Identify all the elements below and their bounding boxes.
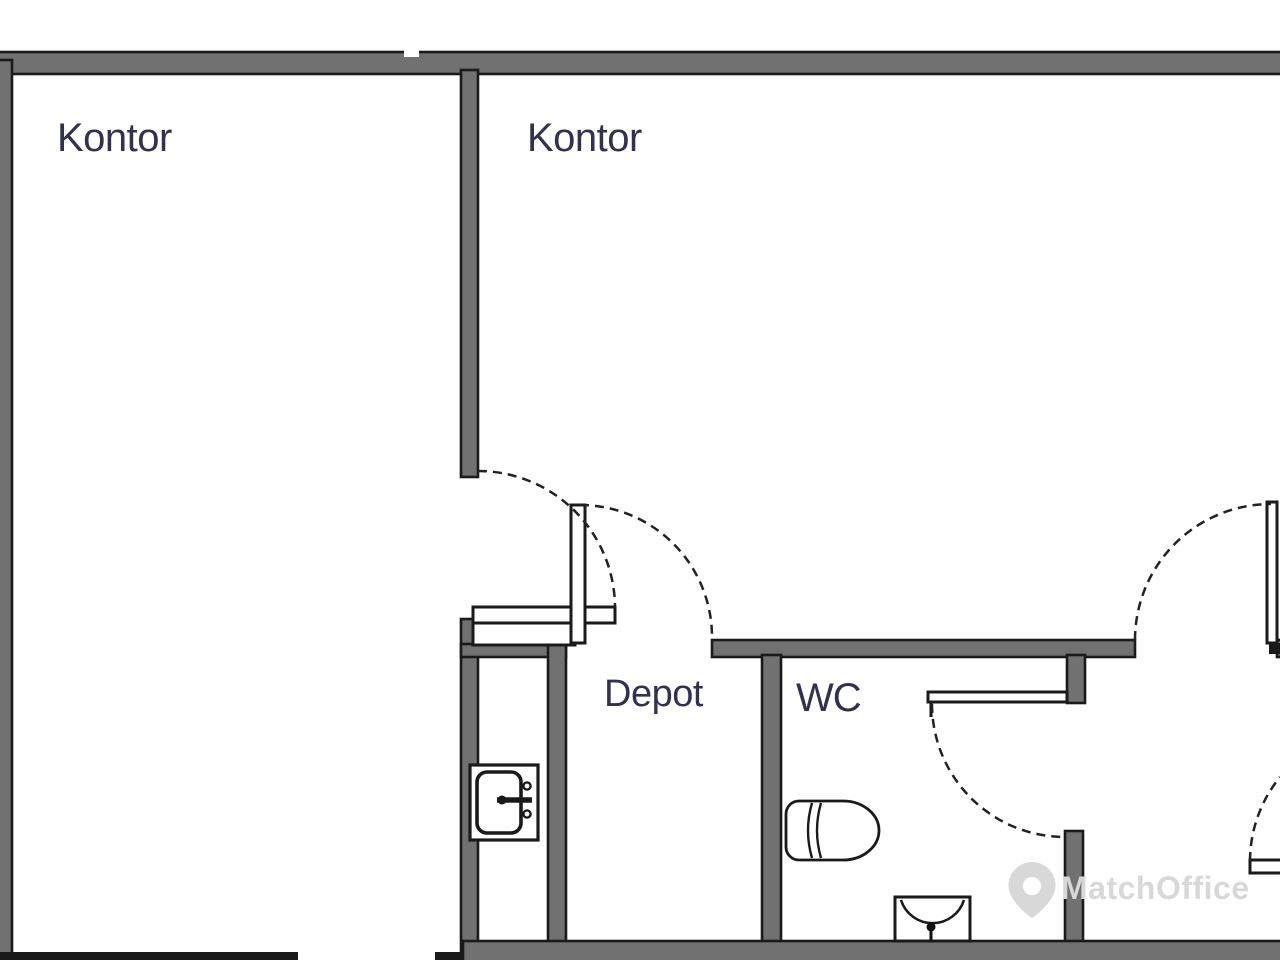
wall-wc-left [762, 655, 781, 947]
walls [0, 52, 1280, 960]
map-pin-icon [1009, 862, 1056, 918]
wall-notch [404, 48, 419, 57]
wall-left [0, 60, 12, 960]
door-arc-corridor [478, 471, 615, 608]
wall-wc-step [1067, 655, 1085, 703]
door-leaf-wc [928, 692, 1067, 702]
room-label-kontor-right: Kontor [527, 118, 642, 158]
door-swing-arcs [478, 471, 1280, 861]
room-label-kontor-left: Kontor [57, 118, 172, 158]
kitchen-sink-icon [470, 765, 538, 840]
wall-bottom [463, 941, 1280, 960]
door-leaf-depot [571, 505, 585, 643]
wall-bottom-left-a [0, 952, 298, 960]
door-arc-right-room [1135, 504, 1271, 640]
wall-middle-partition [461, 70, 478, 477]
room-label-depot: Depot [604, 675, 703, 713]
toilet-icon [786, 801, 879, 860]
door-leaf-corridor-lower [473, 623, 575, 645]
door-leaf-right-cap [1269, 643, 1280, 654]
hand-basin-icon [895, 897, 970, 941]
floor-plan: Kontor Kontor Depot WC MatchOffice [0, 0, 1280, 960]
wall-depot-left [548, 644, 566, 957]
wall-bottom-left-b [435, 952, 463, 960]
door-leaf-bottom-right [1250, 860, 1280, 873]
door-leaf-corridor-horizontal [473, 607, 615, 623]
door-leaf-right-room [1267, 502, 1277, 643]
wall-top [0, 52, 1280, 74]
room-label-wc: WC [796, 678, 861, 718]
door-arc-wc [932, 704, 1065, 837]
wall-bottom-left-lines [0, 952, 463, 960]
watermark-text: MatchOffice [1061, 870, 1250, 907]
door-arc-bottom-right [1250, 777, 1280, 861]
